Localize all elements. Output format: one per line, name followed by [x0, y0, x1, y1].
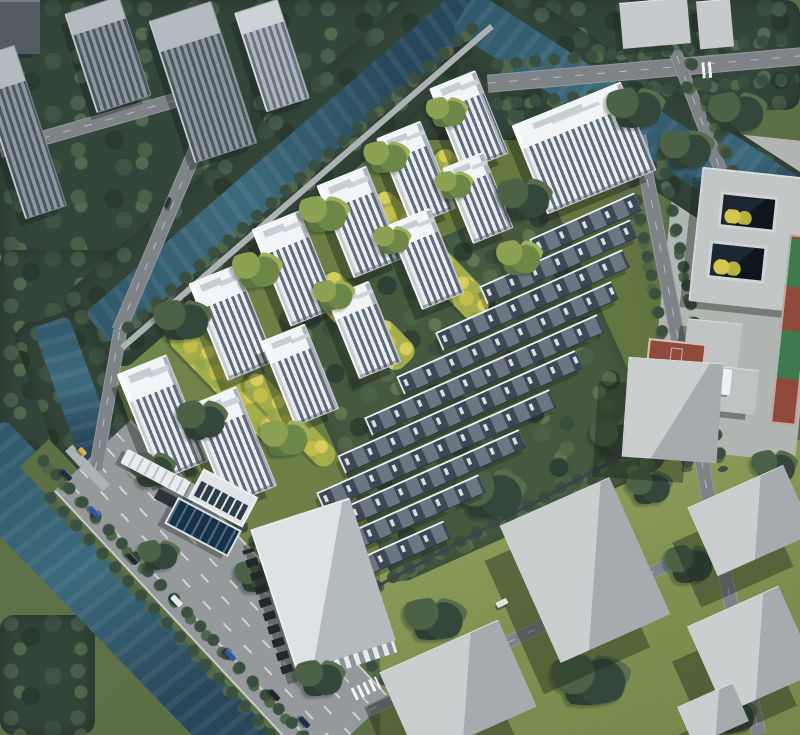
- crosswalk-north: [701, 62, 714, 79]
- lawn-grove-6: [620, 470, 675, 504]
- site-grove-6: [170, 400, 230, 440]
- site-grove-7: [307, 280, 357, 310]
- school-grove-2: [700, 92, 770, 132]
- lawn-grove-2: [395, 598, 470, 640]
- school-courtyard-1: [717, 191, 778, 233]
- context-slab-north-1: [619, 0, 691, 49]
- site-grove-8: [368, 226, 413, 254]
- forest-southwest: [0, 615, 95, 735]
- site-grove-11: [490, 178, 555, 220]
- site-grove-13: [490, 240, 545, 275]
- commercial-grove: [288, 660, 348, 696]
- site-grove-5: [420, 97, 470, 127]
- school-courtyard-2: [706, 240, 768, 284]
- site-grove-2: [225, 252, 285, 288]
- context-block-south: [622, 357, 724, 463]
- site-grove-4: [357, 141, 412, 173]
- site-grove-9: [430, 171, 475, 199]
- site-grove-3: [292, 196, 352, 232]
- site-grove-12: [253, 420, 313, 456]
- aerial-rendering: [0, 0, 800, 735]
- context-slab-north-2: [696, 0, 734, 49]
- site-grove-14: [598, 88, 668, 128]
- lawn-grove-3: [540, 655, 635, 705]
- school-grove-1: [652, 130, 717, 168]
- clubhouse-grove-1: [132, 540, 182, 570]
- site-grove-1: [145, 300, 215, 340]
